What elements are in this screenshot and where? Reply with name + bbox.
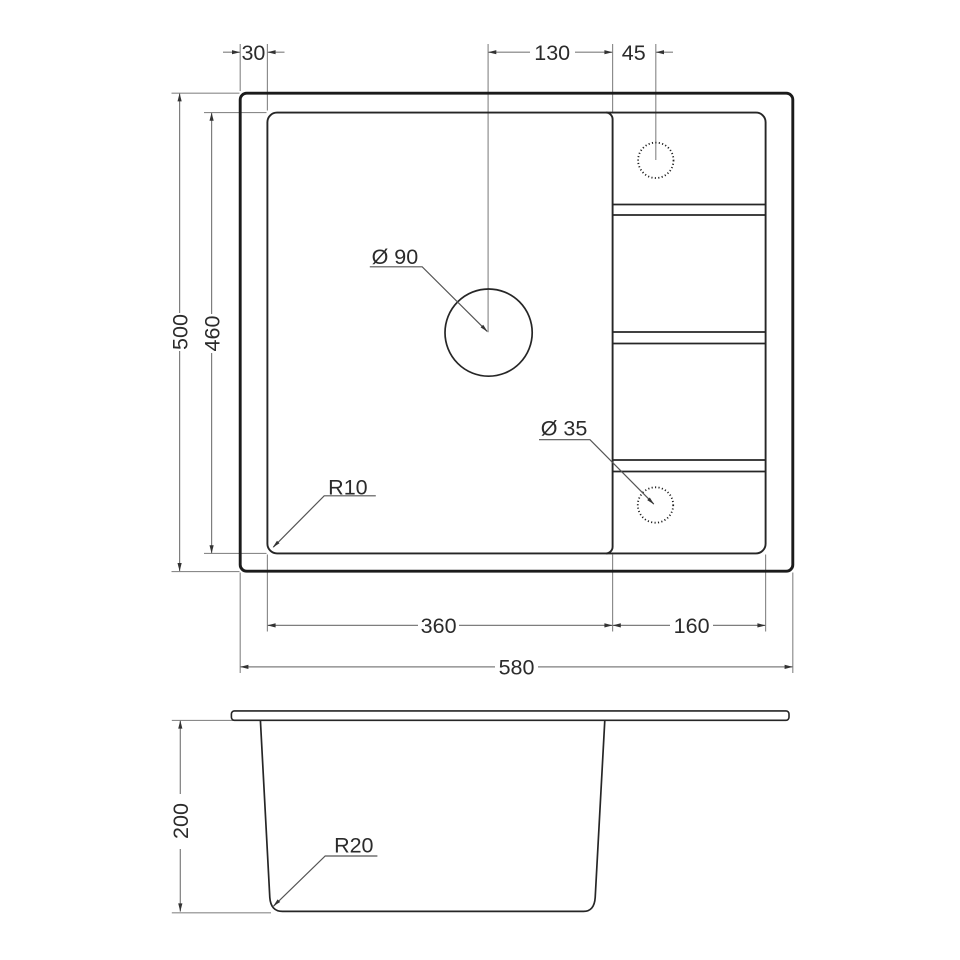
svg-text:Ø 35: Ø 35 [541, 417, 588, 441]
svg-text:500: 500 [168, 314, 192, 350]
svg-text:580: 580 [499, 656, 535, 680]
svg-text:45: 45 [622, 41, 646, 65]
svg-text:R20: R20 [334, 833, 373, 857]
svg-text:R10: R10 [328, 475, 367, 499]
svg-text:130: 130 [534, 41, 570, 65]
svg-text:200: 200 [169, 803, 193, 839]
svg-text:460: 460 [200, 316, 224, 352]
svg-text:30: 30 [241, 41, 265, 65]
svg-text:160: 160 [674, 614, 710, 638]
svg-text:360: 360 [421, 614, 457, 638]
svg-text:Ø 90: Ø 90 [372, 245, 419, 269]
